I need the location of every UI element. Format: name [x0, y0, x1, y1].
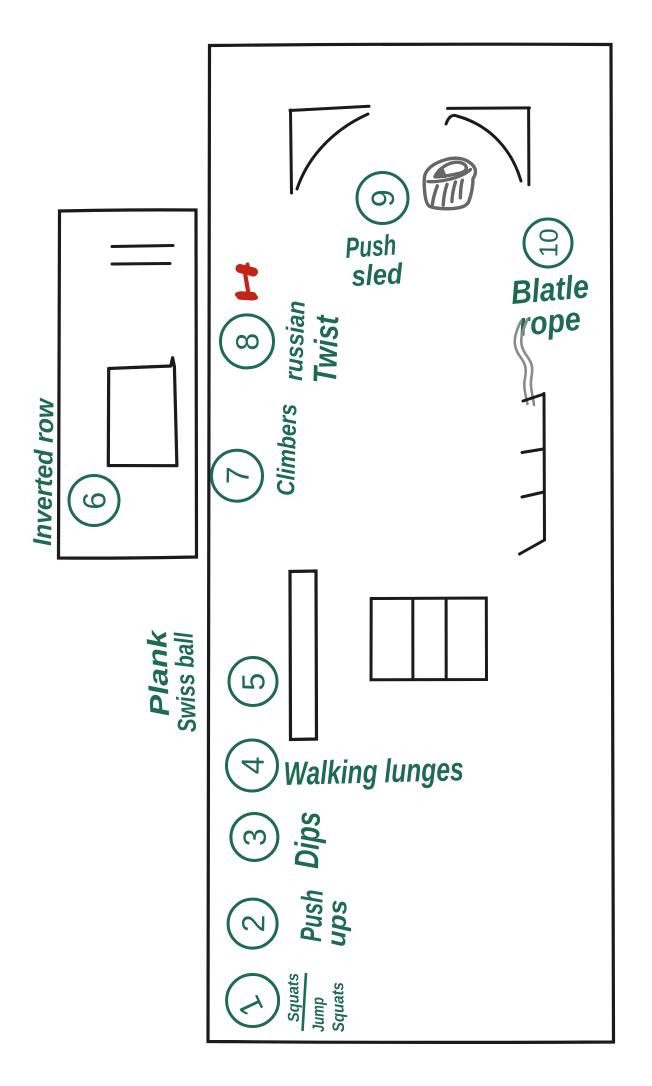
svg-text:Swiss ball: Swiss ball — [169, 631, 202, 733]
svg-text:Walking lunges: Walking lunges — [283, 750, 464, 792]
svg-text:sled: sled — [351, 258, 405, 293]
svg-text:7: 7 — [220, 466, 256, 484]
svg-text:Squats: Squats — [329, 982, 348, 1032]
svg-text:5: 5 — [235, 673, 271, 691]
svg-text:9: 9 — [365, 189, 401, 207]
svg-text:3: 3 — [237, 828, 273, 846]
svg-text:8: 8 — [229, 333, 265, 351]
svg-text:Jump: Jump — [309, 997, 328, 1032]
svg-text:Dips: Dips — [288, 811, 328, 869]
svg-text:Climbers: Climbers — [272, 403, 302, 496]
svg-text:2: 2 — [235, 914, 271, 932]
svg-text:ups: ups — [321, 899, 353, 947]
svg-text:Inverted row: Inverted row — [27, 397, 60, 546]
svg-text:10: 10 — [533, 228, 564, 257]
svg-text:Twist: Twist — [306, 313, 345, 384]
svg-text:6: 6 — [76, 492, 112, 510]
svg-text:Squats: Squats — [285, 973, 303, 1022]
svg-text:4: 4 — [235, 756, 271, 774]
